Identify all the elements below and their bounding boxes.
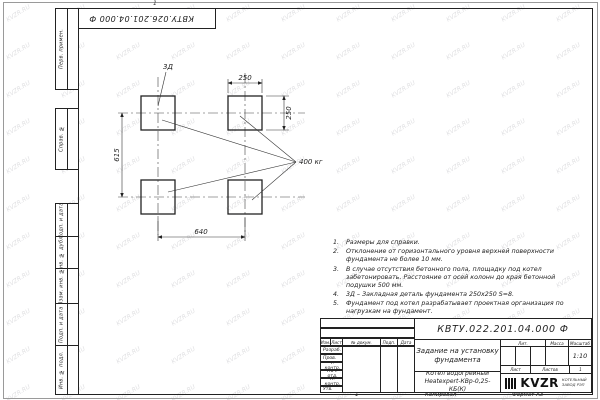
- staff-box-vzam-inv: Взам. инв. №: [55, 268, 79, 305]
- staff-label: Подп. и дата: [56, 204, 67, 237]
- centerlines: [118, 73, 305, 235]
- leader-lines: [158, 72, 296, 200]
- col-header-docnum: № докум.: [342, 338, 381, 346]
- staff-box-inv-dubl: Инв. № дубл.: [55, 236, 79, 270]
- company-caption: КОТЕЛЬНЫЙ ЗАВОД РЭП: [562, 378, 587, 387]
- copied-label: Копировал: [425, 392, 456, 398]
- note-text: Фундамент под котел разрабатывает проект…: [346, 300, 585, 316]
- staff-box-sprav-no: Справ. №: [55, 108, 79, 170]
- note-number: 2.: [333, 248, 346, 264]
- note-text: В случае отсутствия бетонного пола, площ…: [346, 266, 585, 291]
- staff-blank: [67, 269, 78, 304]
- sign-row-prov: Пров.: [320, 354, 343, 362]
- product-line1: Котел водогрейный: [426, 371, 489, 378]
- note-text: Отклонение от горизонтального уровня вер…: [346, 248, 585, 264]
- staff-box-inv-podl: Инв. № подл.: [55, 345, 79, 395]
- staff-blank: [67, 346, 78, 394]
- note-number: 1.: [333, 239, 346, 247]
- zone-mark-bottom: 1: [355, 392, 359, 398]
- note-item: 4.3Д – Закладная деталь фундамента 250х2…: [333, 291, 585, 299]
- dim-top-width: 250: [238, 74, 252, 82]
- kvzr-logo-icon: [505, 378, 517, 389]
- dim-bottom-width: 640: [194, 228, 208, 236]
- amendment-row: [320, 328, 415, 338]
- note-number: 4.: [333, 291, 346, 299]
- notes-list: 1.Размеры для справки. 2.Отклонение от г…: [333, 239, 585, 318]
- sign-row-tkontr: Т. контр.: [320, 362, 343, 370]
- anchor-plates: [141, 96, 262, 214]
- note-item: 5.Фундамент под котел разрабатывает прое…: [333, 300, 585, 316]
- company-caption-line2: ЗАВОД РЭП: [562, 382, 585, 387]
- format-label: Формат А3: [512, 392, 543, 398]
- staff-box-perv-primen: Перв. примен.: [55, 8, 79, 90]
- drawing-sheet: KVZR.RUKVZR.RUKVZR.RUKVZR.RUKVZR.RUKVZR.…: [0, 0, 600, 400]
- staff-blank: [67, 304, 78, 346]
- foundation-plan-drawing: 250 250 615 640 3Д 400 кг: [100, 55, 335, 255]
- note-number: 3.: [333, 266, 346, 291]
- company-logo-cell: KVZR КОТЕЛЬНЫЙ ЗАВОД РЭП: [500, 373, 592, 393]
- note-text: 3Д – Закладная деталь фундамента 250х250…: [346, 291, 585, 299]
- dim-right-height: 250: [285, 106, 293, 120]
- note-item: 1.Размеры для справки.: [333, 239, 585, 247]
- title-block: Изм. Лист № докум. Подп. Дата Разраб. Пр…: [320, 318, 592, 393]
- doc-number: КВТУ.022.201.04.000 Ф: [414, 318, 592, 340]
- note-text: Размеры для справки.: [346, 239, 585, 247]
- staff-label: Справ. №: [56, 109, 67, 169]
- staff-label: Перв. примен.: [56, 9, 67, 89]
- lit-cell-2: [515, 346, 531, 366]
- kvzr-logo-text: KVZR: [520, 376, 559, 390]
- lit-cell-1: [500, 346, 516, 366]
- product-line2: Heatexpert-КВр-0,25- КБ(К): [415, 378, 500, 393]
- staff-blank: [67, 204, 78, 237]
- zone-mark-top: 1: [153, 0, 157, 7]
- drawing-title-line1: Задание на установку: [416, 347, 498, 355]
- rotated-doc-number-stamp: КВТУ.026.201.04.000 Ф: [66, 8, 216, 29]
- sign-date-column: [397, 346, 415, 393]
- note-item: 2.Отклонение от горизонтального уровня в…: [333, 248, 585, 264]
- staff-box-podp-data-2: Подп. и дата: [55, 303, 79, 347]
- mass-cell: [545, 346, 569, 366]
- dim-left-height: 615: [113, 148, 121, 162]
- staff-label: Подп. и дата: [56, 304, 67, 346]
- sign-row-nachotd: Нач. отд.: [320, 370, 343, 378]
- amendment-row: [320, 318, 415, 328]
- embed-part-label: 3Д: [163, 63, 173, 71]
- rotated-doc-number: КВТУ.026.201.04.000 Ф: [89, 14, 194, 23]
- sign-row-razrab: Разраб.: [320, 346, 343, 354]
- note-item: 3.В случае отсутствия бетонного пола, пл…: [333, 266, 585, 291]
- staff-label: Инв. № подл.: [56, 346, 67, 394]
- staff-blank: [67, 237, 78, 269]
- staff-label: Инв. № дубл.: [56, 237, 67, 269]
- dimension-lines: [122, 79, 289, 241]
- staff-blank: [67, 109, 78, 169]
- product-name: Котел водогрейный Heatexpert-КВр-0,25- К…: [414, 371, 501, 393]
- sign-row-utv: Утв.: [320, 386, 343, 393]
- drawing-title-line2: фундамента: [434, 356, 480, 364]
- note-number: 5.: [333, 300, 346, 316]
- sign-row-nkontr: Н. контр.: [320, 378, 343, 386]
- staff-blank: [67, 9, 78, 89]
- weight-label: 400 кг: [299, 158, 323, 166]
- sign-name-column: [342, 346, 381, 393]
- scale-value: 1:10: [568, 346, 592, 366]
- drawing-title: Задание на установку фундамента: [414, 339, 501, 372]
- staff-box-podp-data-1: Подп. и дата: [55, 203, 79, 238]
- staff-label: Взам. инв. №: [56, 269, 67, 304]
- col-header-data: Дата: [397, 338, 415, 346]
- sign-podp-column: [380, 346, 398, 393]
- lit-cell-3: [530, 346, 546, 366]
- col-header-podp: Подп.: [380, 338, 398, 346]
